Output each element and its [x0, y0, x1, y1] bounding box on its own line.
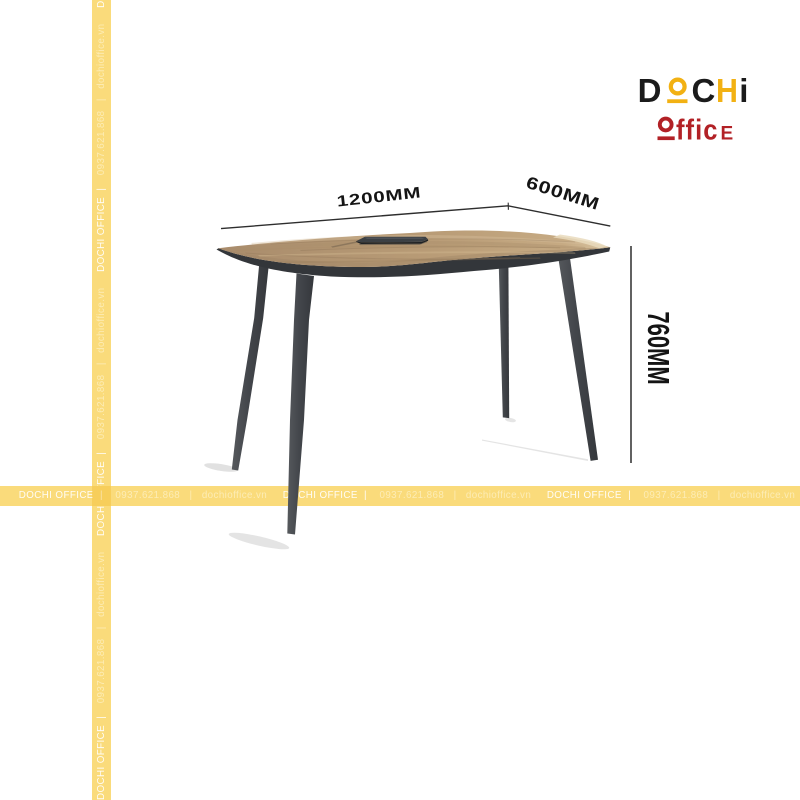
- svg-text:600MM: 600MM: [524, 173, 602, 214]
- svg-text:E: E: [721, 123, 734, 144]
- svg-text:ffic: ffic: [676, 113, 718, 146]
- svg-text:1200MM: 1200MM: [336, 183, 422, 210]
- svg-text:760MM: 760MM: [641, 311, 675, 384]
- svg-text:i: i: [739, 72, 748, 109]
- svg-text:D: D: [638, 72, 662, 109]
- svg-text:C: C: [692, 72, 716, 109]
- svg-text:H: H: [716, 72, 738, 109]
